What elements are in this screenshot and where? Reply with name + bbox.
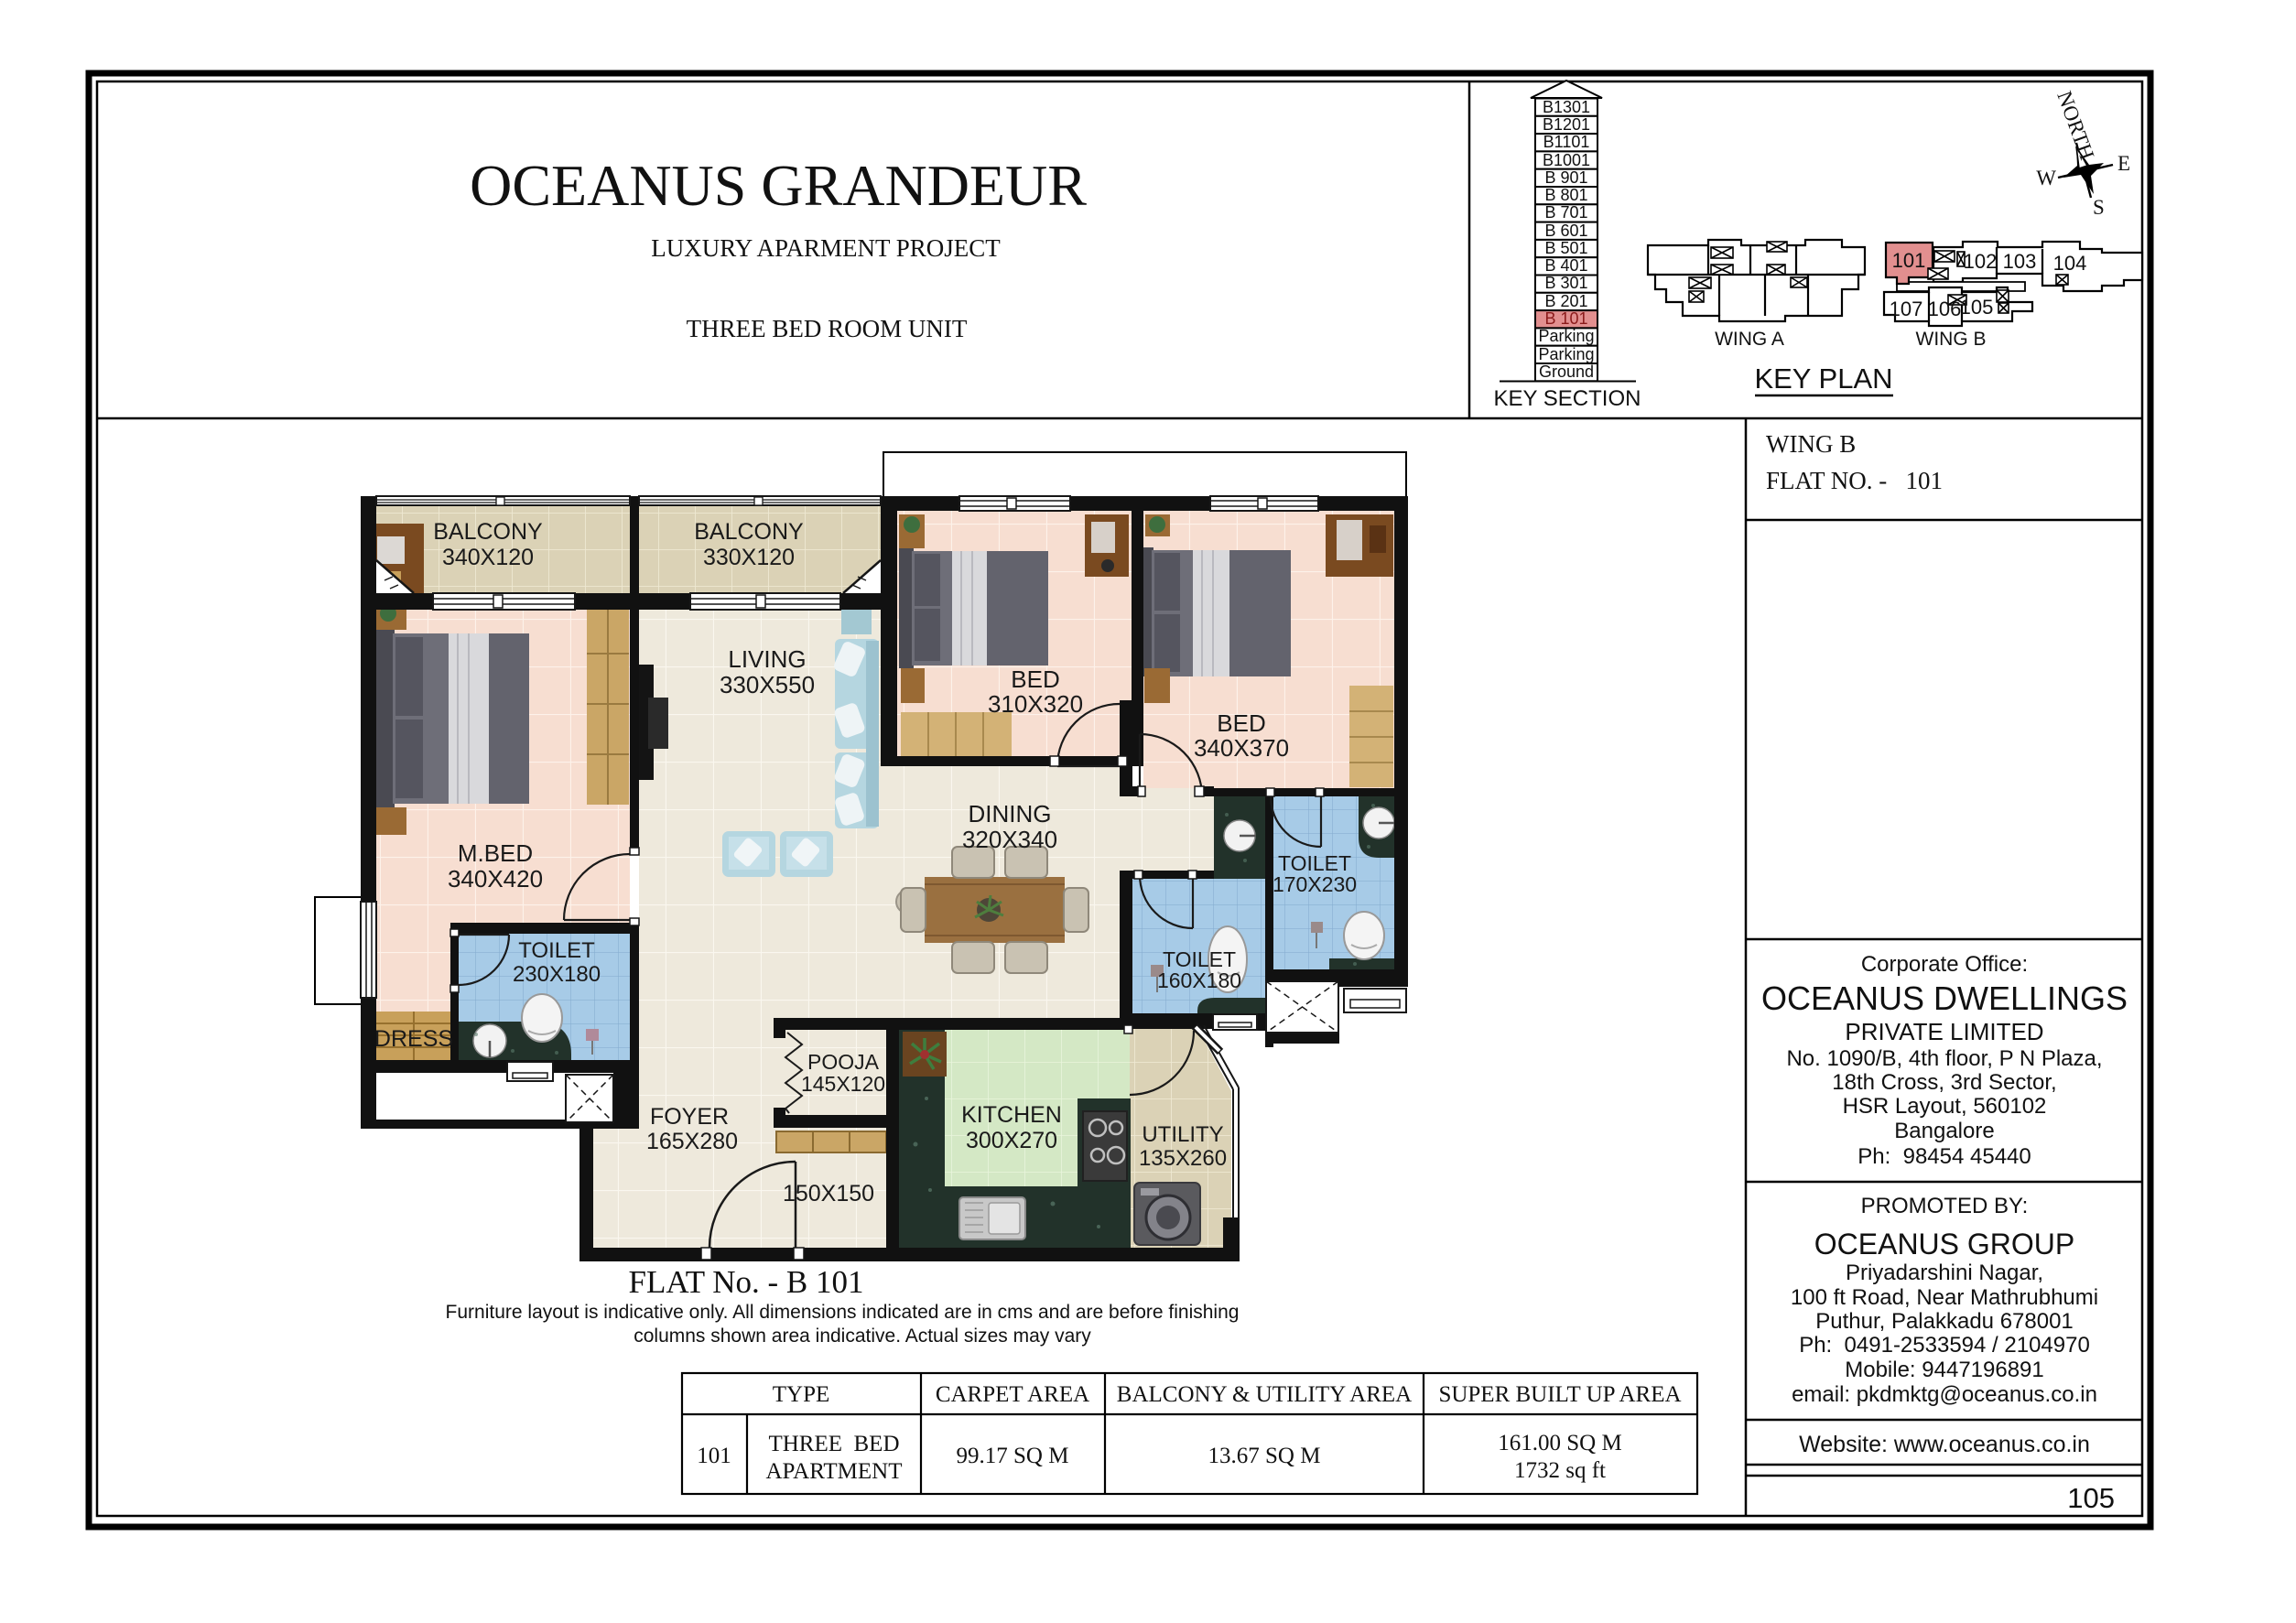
svg-text:KEY SECTION: KEY SECTION — [1494, 386, 1641, 411]
svg-text:161.00 SQ M: 161.00 SQ M — [1498, 1431, 1621, 1455]
svg-text:M.BED: M.BED — [458, 839, 533, 867]
svg-text:No. 1090/B, 4th floor, P N Pla: No. 1090/B, 4th floor, P N Plaza, — [1786, 1046, 2102, 1071]
svg-text:135X260: 135X260 — [1139, 1146, 1227, 1171]
svg-text:KEY PLAN: KEY PLAN — [1754, 362, 1892, 395]
svg-text:B1101: B1101 — [1543, 133, 1590, 151]
svg-text:340X120: 340X120 — [442, 545, 534, 570]
svg-text:THREE BED: THREE BED — [768, 1432, 899, 1456]
svg-text:CARPET AREA: CARPET AREA — [936, 1382, 1089, 1407]
svg-text:KITCHEN: KITCHEN — [961, 1102, 1062, 1128]
svg-text:TOILET: TOILET — [518, 938, 595, 963]
svg-text:BALCONY & UTILITY AREA: BALCONY & UTILITY AREA — [1117, 1382, 1412, 1407]
svg-text:BED: BED — [1011, 665, 1059, 693]
svg-text:DRESS: DRESS — [374, 1026, 453, 1052]
svg-text:230X180: 230X180 — [513, 962, 601, 987]
svg-text:B 601: B 601 — [1544, 222, 1587, 240]
svg-text:email: pkdmktg@oceanus.co.in: email: pkdmktg@oceanus.co.in — [1792, 1382, 2097, 1407]
svg-text:POOJA: POOJA — [807, 1050, 880, 1074]
svg-text:105: 105 — [1960, 296, 1994, 319]
svg-text:Ground: Ground — [1539, 362, 1594, 381]
svg-text:B 201: B 201 — [1544, 292, 1587, 310]
svg-text:B 901: B 901 — [1544, 168, 1587, 187]
svg-text:PRIVATE LIMITED: PRIVATE LIMITED — [1845, 1018, 2043, 1045]
svg-text:300X270: 300X270 — [966, 1128, 1057, 1153]
svg-text:B 101: B 101 — [1544, 309, 1587, 328]
svg-text:150X150: 150X150 — [783, 1181, 874, 1206]
svg-text:Furniture layout is indicative: Furniture layout is indicative only. All… — [446, 1302, 1240, 1323]
svg-text:Priyadarshini Nagar,: Priyadarshini Nagar, — [1846, 1261, 2043, 1285]
svg-text:Parking: Parking — [1538, 345, 1594, 363]
svg-text:Puthur, Palakkadu 678001: Puthur, Palakkadu 678001 — [1815, 1309, 2074, 1334]
svg-text:B1001: B1001 — [1543, 151, 1590, 169]
svg-text:105: 105 — [2067, 1482, 2115, 1514]
svg-text:BALCONY: BALCONY — [433, 519, 543, 545]
svg-text:310X320: 310X320 — [988, 690, 1083, 718]
svg-text:100 ft Road, Near Mathrubhumi: 100 ft Road, Near Mathrubhumi — [1791, 1285, 2098, 1310]
svg-text:Ph: 0491-2533594 / 2104970: Ph: 0491-2533594 / 2104970 — [1799, 1333, 2090, 1358]
svg-text:330X550: 330X550 — [720, 671, 815, 698]
svg-text:104: 104 — [2053, 252, 2087, 275]
svg-text:Parking: Parking — [1538, 327, 1594, 345]
svg-text:B 301: B 301 — [1544, 274, 1587, 292]
svg-text:WING B: WING B — [1766, 430, 1856, 458]
svg-text:OCEANUS GROUP: OCEANUS GROUP — [1814, 1228, 2074, 1261]
svg-text:OCEANUS GRANDEUR: OCEANUS GRANDEUR — [470, 153, 1087, 218]
svg-text:103: 103 — [2003, 250, 2037, 273]
svg-text:320X340: 320X340 — [962, 826, 1057, 853]
svg-text:BED: BED — [1217, 709, 1265, 737]
svg-text:Mobile: 9447196891: Mobile: 9447196891 — [1845, 1358, 2044, 1382]
svg-text:107: 107 — [1890, 298, 1923, 320]
svg-text:HSR Layout, 560102: HSR Layout, 560102 — [1843, 1094, 2047, 1119]
svg-text:Ph: 98454 45440: Ph: 98454 45440 — [1857, 1144, 2031, 1169]
svg-text:UTILITY: UTILITY — [1142, 1122, 1223, 1147]
svg-text:S: S — [2093, 196, 2105, 219]
svg-text:DINING: DINING — [969, 800, 1052, 828]
svg-text:Corporate Office:: Corporate Office: — [1861, 952, 2028, 977]
svg-text:101: 101 — [697, 1444, 731, 1468]
svg-text:330X120: 330X120 — [703, 545, 795, 570]
svg-text:B1301: B1301 — [1543, 98, 1590, 116]
svg-text:101: 101 — [1892, 249, 1926, 272]
svg-text:165X280: 165X280 — [646, 1129, 738, 1154]
svg-text:B 701: B 701 — [1544, 203, 1587, 222]
svg-text:Website: www.oceanus.co.in: Website: www.oceanus.co.in — [1799, 1432, 2090, 1457]
svg-text:106: 106 — [1928, 298, 1962, 320]
svg-text:FLAT No. - B 101: FLAT No. - B 101 — [628, 1264, 863, 1300]
svg-text:W: W — [2036, 167, 2056, 189]
svg-text:OCEANUS DWELLINGS: OCEANUS DWELLINGS — [1761, 979, 2128, 1017]
svg-text:LUXURY APARMENT PROJECT: LUXURY APARMENT PROJECT — [651, 234, 1001, 262]
svg-text:99.17 SQ M: 99.17 SQ M — [957, 1444, 1069, 1468]
svg-text:340X420: 340X420 — [448, 865, 543, 893]
svg-text:LIVING: LIVING — [728, 645, 806, 673]
svg-text:BALCONY: BALCONY — [694, 519, 804, 545]
svg-text:Bangalore: Bangalore — [1894, 1119, 1994, 1143]
svg-text:WING B: WING B — [1916, 329, 1987, 350]
svg-text:B 401: B 401 — [1544, 256, 1587, 275]
svg-text:APARTMENT: APARTMENT — [766, 1459, 903, 1484]
svg-text:B 501: B 501 — [1544, 239, 1587, 257]
svg-text:160X180: 160X180 — [1157, 968, 1241, 992]
svg-text:B 801: B 801 — [1544, 186, 1587, 204]
svg-text:170X230: 170X230 — [1273, 872, 1357, 896]
svg-text:THREE BED ROOM UNIT: THREE BED ROOM UNIT — [687, 315, 968, 342]
svg-text:FLAT NO. - 101: FLAT NO. - 101 — [1766, 467, 1943, 494]
svg-text:13.67 SQ M: 13.67 SQ M — [1208, 1444, 1321, 1468]
svg-text:145X120: 145X120 — [801, 1072, 885, 1096]
svg-text:WING A: WING A — [1715, 329, 1784, 350]
svg-text:TYPE: TYPE — [773, 1382, 830, 1407]
svg-text:18th Cross, 3rd Sector,: 18th Cross, 3rd Sector, — [1832, 1070, 2056, 1095]
svg-text:FOYER: FOYER — [650, 1104, 729, 1130]
svg-text:340X370: 340X370 — [1194, 734, 1289, 762]
svg-text:PROMOTED BY:: PROMOTED BY: — [1861, 1194, 2029, 1218]
svg-text:columns shown area indicative.: columns shown area indicative. Actual si… — [634, 1325, 1091, 1347]
svg-text:SUPER BUILT UP AREA: SUPER BUILT UP AREA — [1438, 1382, 1681, 1407]
svg-text:B1201: B1201 — [1543, 115, 1590, 134]
svg-text:102: 102 — [1964, 250, 1998, 273]
svg-text:1732 sq ft: 1732 sq ft — [1514, 1458, 1606, 1483]
svg-text:E: E — [2117, 152, 2130, 175]
